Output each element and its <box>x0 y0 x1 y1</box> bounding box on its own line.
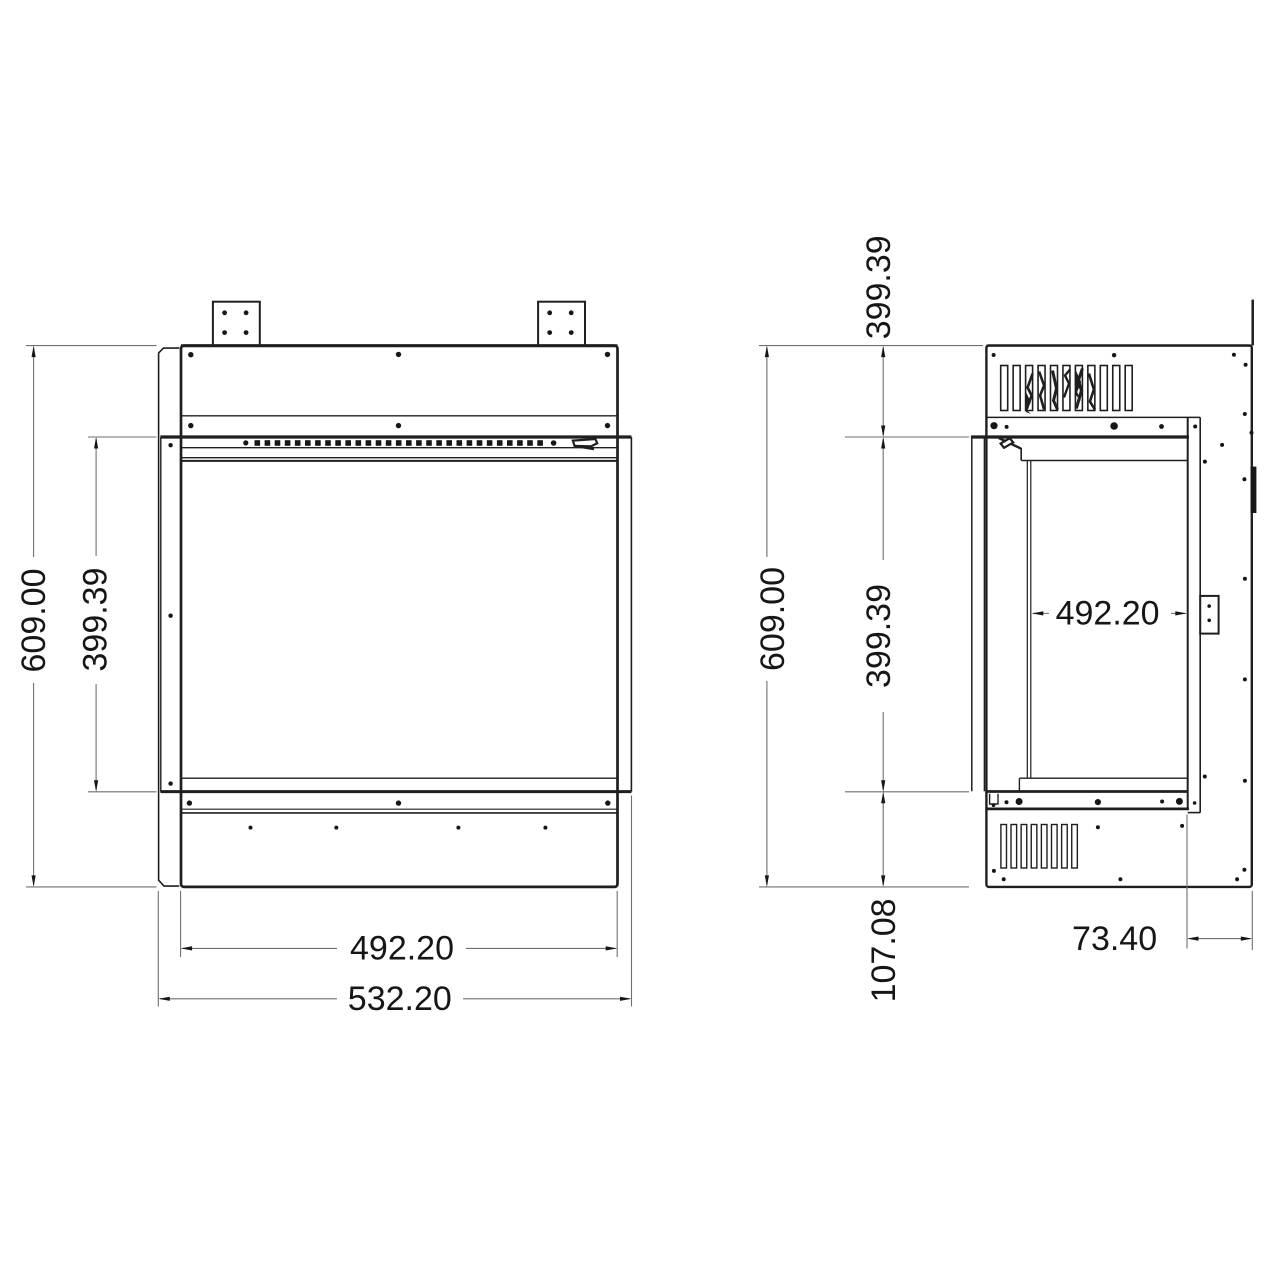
svg-text:399.39: 399.39 <box>860 584 898 688</box>
svg-text:107.08: 107.08 <box>865 898 903 1002</box>
svg-text:399.39: 399.39 <box>860 235 898 339</box>
svg-text:609.00: 609.00 <box>754 567 792 671</box>
svg-text:492.20: 492.20 <box>1056 595 1160 633</box>
svg-text:492.20: 492.20 <box>350 930 454 968</box>
svg-text:609.00: 609.00 <box>15 569 53 673</box>
svg-text:399.39: 399.39 <box>77 568 115 672</box>
svg-text:73.40: 73.40 <box>1072 920 1157 958</box>
svg-text:532.20: 532.20 <box>348 980 452 1018</box>
